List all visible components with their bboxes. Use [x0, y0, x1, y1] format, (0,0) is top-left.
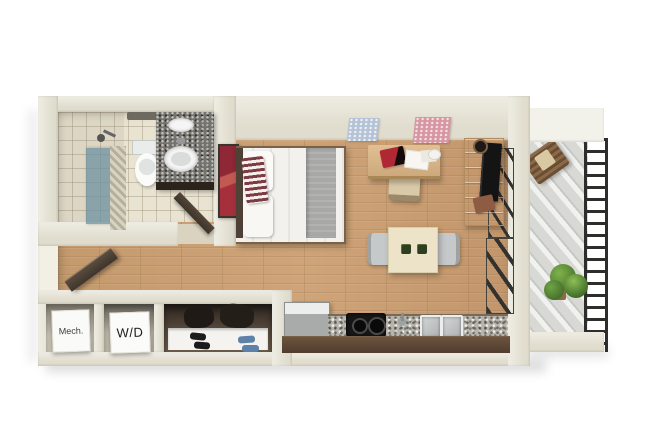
hanging-coat: [219, 303, 255, 330]
cooktop: [346, 313, 386, 337]
desk-plate: [428, 149, 441, 160]
entry-door-opening: [40, 246, 58, 290]
closet-divider-1: [94, 304, 104, 352]
kitchen-cabinets: [282, 336, 510, 353]
kitchen-sink: [420, 315, 462, 337]
bathroom-bottom-wall: [38, 222, 178, 246]
closet-top-wall: [38, 290, 292, 304]
closet-divider-2: [154, 304, 164, 352]
dining-table: [388, 227, 438, 273]
bathroom-vanity: [156, 112, 214, 190]
washer-dryer-label: W/D: [116, 325, 143, 341]
mech-unit-box: Mech.: [51, 309, 90, 352]
top-wall-bathroom: [38, 96, 214, 112]
window-lower: [486, 238, 514, 314]
shower-glass: [86, 148, 112, 224]
mech-label: Mech.: [59, 326, 84, 337]
shower-screen: [110, 146, 126, 230]
bed: [236, 146, 346, 244]
shower-head-icon: [97, 134, 105, 142]
floorplan-scene: Mech. W/D: [0, 0, 650, 440]
shoes-blue: [238, 335, 255, 343]
desk: [368, 145, 440, 179]
hanging-coat: [183, 304, 215, 329]
vanity-sink-basin: [171, 152, 191, 166]
shoes-black: [194, 341, 210, 349]
bed-blanket: [306, 148, 336, 238]
plant-foliage: [564, 274, 588, 298]
balcony-railing: [584, 138, 608, 352]
shoes-blue: [242, 345, 259, 352]
balcony-bottom-wall: [522, 332, 604, 352]
shoe-closet: [164, 304, 272, 352]
refrigerator: [284, 302, 330, 340]
plant-foliage: [544, 280, 564, 300]
potted-plant: [544, 262, 588, 308]
placemat: [417, 244, 427, 254]
vanity-faucet-icon: [177, 138, 185, 144]
speaker: [473, 139, 488, 154]
ground-shadow-left: [28, 110, 38, 362]
kitchen-faucet-spout: [401, 313, 404, 321]
vanity-sink-small: [168, 118, 194, 132]
balcony-top-wall: [522, 108, 604, 142]
burner: [368, 317, 386, 335]
vanity-cabinet-edge: [156, 182, 214, 190]
wall-art-blue: [347, 118, 379, 141]
washer-dryer-box: W/D: [109, 311, 150, 353]
burner: [352, 318, 368, 334]
red-book: [379, 146, 406, 169]
placemat: [401, 244, 411, 254]
wall-art-pink: [413, 117, 452, 143]
